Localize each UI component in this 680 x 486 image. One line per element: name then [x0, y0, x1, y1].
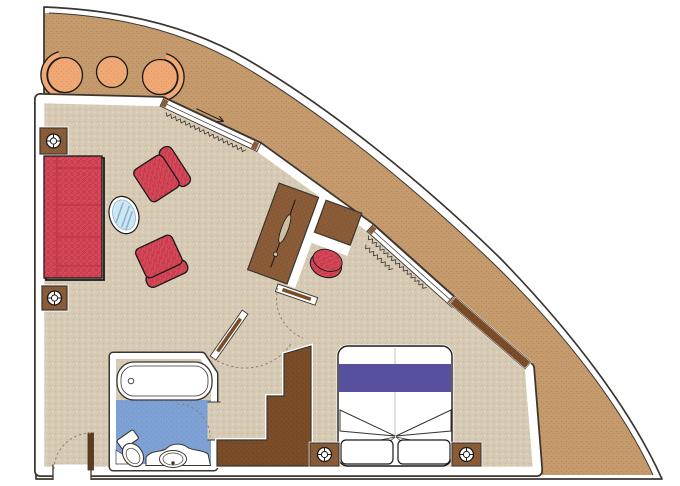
round-table: [97, 57, 128, 88]
entry-opening: [53, 465, 91, 481]
pillow: [398, 440, 450, 464]
floor-plan-canvas: [0, 0, 680, 486]
bathtub-drain: [128, 378, 134, 384]
pillow: [341, 440, 393, 464]
reading-light-symbol: [318, 448, 332, 462]
washbasin-drain: [172, 462, 174, 464]
reading-light-symbol: [48, 291, 62, 305]
reading-light-symbol: [47, 134, 61, 148]
bed-stripe: [339, 364, 451, 392]
floor-plan: [0, 0, 680, 486]
reading-light-symbol: [460, 448, 474, 462]
sofa: [44, 156, 102, 278]
entry-door-leaf: [88, 433, 94, 470]
bathroom: [113, 356, 221, 471]
bathroom-door-opening: [208, 402, 221, 440]
